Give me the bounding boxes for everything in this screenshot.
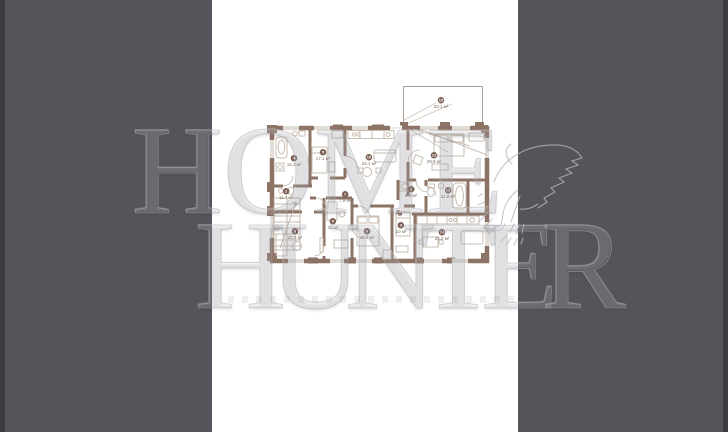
room-number-badge: 1	[408, 186, 415, 193]
room-number-badge: 2	[283, 188, 290, 195]
room-number-badge: 6	[330, 218, 337, 225]
room-label: 2 11.7 м²	[279, 188, 293, 200]
room-area-label: 16.4 м²	[360, 235, 375, 240]
room-area-label: 29.8 м²	[427, 159, 442, 164]
room-number-badge: 9	[364, 228, 371, 235]
floorplan-drawing	[0, 0, 728, 432]
room-label: 5 17.1 м²	[316, 149, 331, 161]
room-number-badge: 14	[439, 229, 446, 236]
room-label: 3 10 м²	[396, 222, 407, 234]
room-label: 7 7.9 м²	[339, 191, 351, 203]
room-number-badge: 4	[291, 155, 298, 162]
room-area-label: 11.7 м²	[279, 195, 293, 200]
room-number-badge: 15	[438, 97, 445, 104]
room-label: 10 24.1 м²	[362, 154, 377, 166]
room-label: 9 16.4 м²	[360, 228, 375, 240]
room-label: 12 29.8 м²	[427, 152, 442, 164]
room-label: 8 22.3 м²	[288, 228, 303, 240]
room-area-label: 24.1 м²	[362, 161, 377, 166]
room-label: 4 16.2 м²	[287, 155, 302, 167]
room-number-badge: 7	[342, 191, 349, 198]
room-number-badge: 12	[431, 152, 438, 159]
room-number-badge: 13	[445, 187, 452, 194]
room-label: 13 11.8 м²	[441, 187, 455, 199]
room-number-badge: 3	[398, 222, 405, 229]
room-area-label: 7.9 м²	[339, 198, 351, 203]
room-area-label: 10 м²	[396, 229, 407, 234]
room-area-label: 11.8 м²	[441, 194, 455, 199]
room-label: 6 10 м²	[328, 218, 339, 230]
room-number-badge: 5	[320, 149, 327, 156]
room-number-badge: 10	[366, 154, 373, 161]
room-label: 1 6.0 м²	[405, 186, 417, 198]
furniture	[275, 129, 487, 259]
room-area-label: 25.2 м²	[435, 236, 450, 241]
room-area-label: 16.2 м²	[287, 162, 302, 167]
room-area-label: 17.1 м²	[316, 156, 331, 161]
room-number-badge: 8	[292, 228, 299, 235]
viewer-stage: 4 16.2 м² 2 11.7 м² 5 17.1 м² 10 24.1 м²…	[0, 0, 728, 432]
room-area-label: 33.1 м²	[434, 104, 449, 109]
room-label: 14 25.2 м²	[435, 229, 450, 241]
room-area-label: 6.0 м²	[405, 193, 417, 198]
door-arcs	[283, 150, 436, 256]
room-label: 15 33.1 м²	[434, 97, 449, 109]
room-area-label: 22.3 м²	[288, 235, 303, 240]
room-area-label: 10 м²	[328, 225, 339, 230]
